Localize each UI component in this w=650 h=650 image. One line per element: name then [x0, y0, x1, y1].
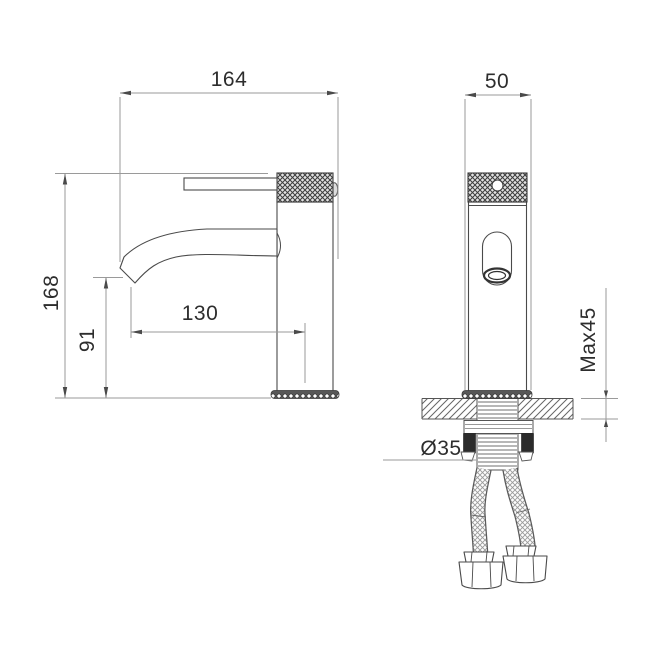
dim-168-label: 168	[40, 275, 64, 312]
side-view	[120, 173, 339, 399]
left-hose-nut	[459, 562, 503, 589]
dim-168	[55, 174, 271, 399]
technical-drawing-canvas: 164 50 168 91 130 Max45 Ø35	[0, 0, 650, 650]
dim-164-label: 164	[211, 68, 248, 92]
set-screw-hole	[492, 180, 503, 191]
hose-nuts	[459, 546, 547, 589]
faucet-body-front	[469, 202, 527, 391]
base-ring-side	[271, 391, 339, 399]
faucet-drawing	[0, 0, 650, 650]
spout	[120, 229, 277, 283]
locking-flange	[464, 421, 533, 434]
front-view	[422, 173, 573, 589]
spout-outlet	[483, 232, 512, 285]
dim-max45-label: Max45	[577, 307, 601, 373]
mounting-shank	[477, 399, 518, 471]
right-hose-collar	[506, 546, 536, 556]
left-hose-collar	[464, 552, 494, 562]
dim-91-label: 91	[76, 328, 100, 352]
dim-130-label: 130	[182, 302, 219, 326]
dim-50-label: 50	[485, 70, 509, 94]
lever-handle	[184, 178, 277, 190]
supply-hoses	[471, 469, 530, 553]
right-hose-nut	[503, 556, 547, 583]
knurled-cap-side	[277, 173, 333, 202]
dim-dia35-label: Ø35	[420, 437, 461, 461]
aerator-inner	[489, 272, 506, 280]
base-ring-front	[462, 391, 532, 399]
